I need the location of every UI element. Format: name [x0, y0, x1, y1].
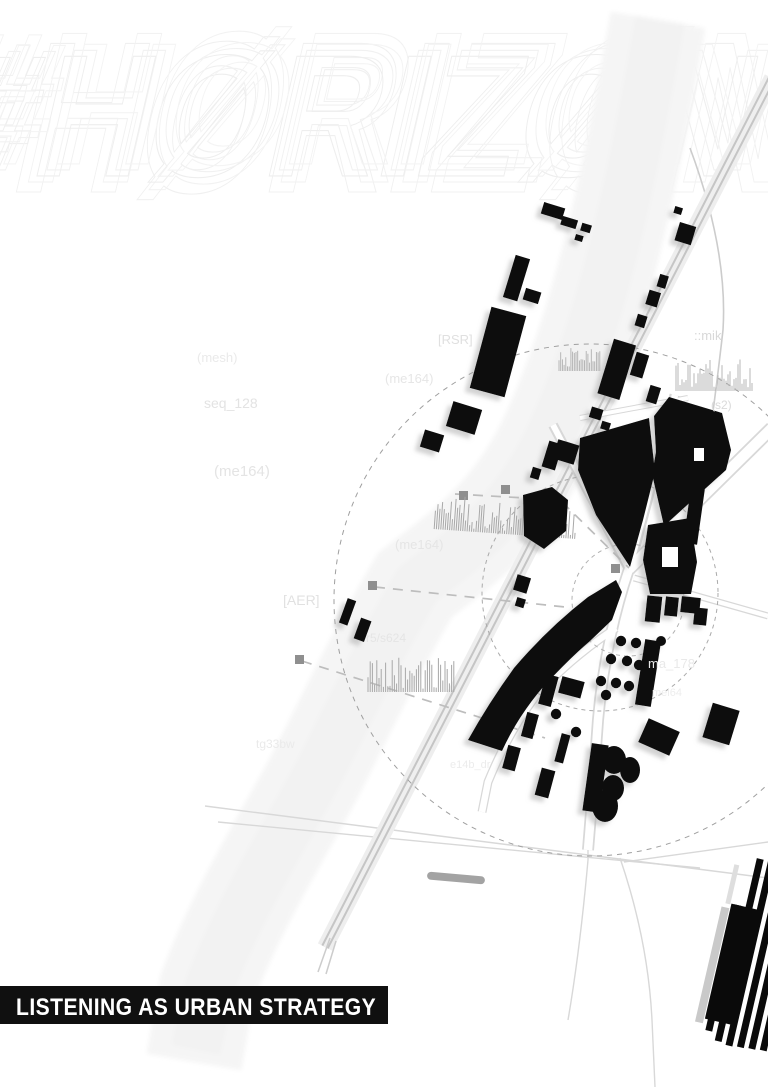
- svg-text:(me164): (me164): [385, 371, 433, 386]
- svg-text:::mik: ::mik: [694, 328, 722, 343]
- svg-text:(me164): (me164): [395, 537, 443, 552]
- svg-text:ma_178: ma_178: [648, 656, 695, 671]
- svg-text:[AER]: [AER]: [283, 592, 320, 608]
- svg-text:r5/s624: r5/s624: [366, 631, 406, 645]
- svg-text:(me164): (me164): [214, 463, 270, 480]
- svg-text:[RSR]: [RSR]: [438, 332, 473, 347]
- svg-text:seq_128: seq_128: [204, 395, 258, 411]
- svg-text:LISTENING AS URBAN STRATEGY: LISTENING AS URBAN STRATEGY: [16, 994, 376, 1021]
- svg-text:(s2): (s2): [711, 398, 732, 412]
- svg-text:e14b_dr: e14b_dr: [450, 759, 491, 771]
- svg-text:tg33bw: tg33bw: [256, 737, 295, 751]
- svg-text:mel64: mel64: [652, 687, 682, 699]
- svg-text:(mesh): (mesh): [197, 350, 237, 365]
